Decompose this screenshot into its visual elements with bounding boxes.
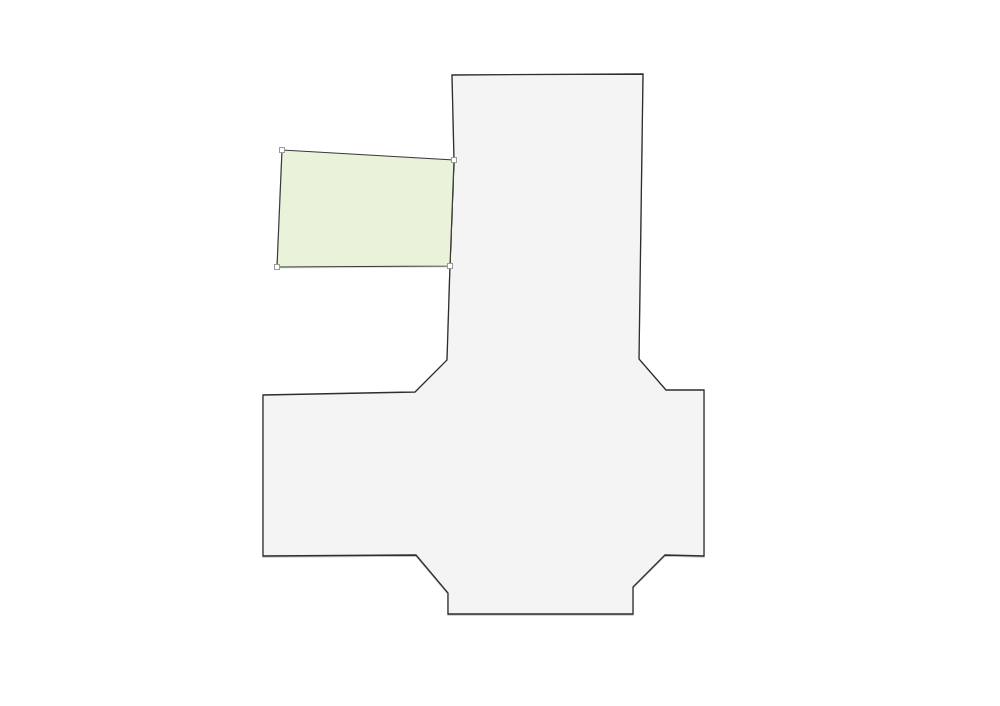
- vertex-handle-0[interactable]: [280, 148, 285, 153]
- vertex-handle-3[interactable]: [275, 265, 280, 270]
- selected-parcel[interactable]: [277, 150, 454, 267]
- drawing-canvas[interactable]: [0, 0, 1000, 706]
- editor-canvas-background: [0, 0, 1000, 706]
- vertex-handle-2[interactable]: [448, 264, 453, 269]
- vertex-handle-1[interactable]: [452, 158, 457, 163]
